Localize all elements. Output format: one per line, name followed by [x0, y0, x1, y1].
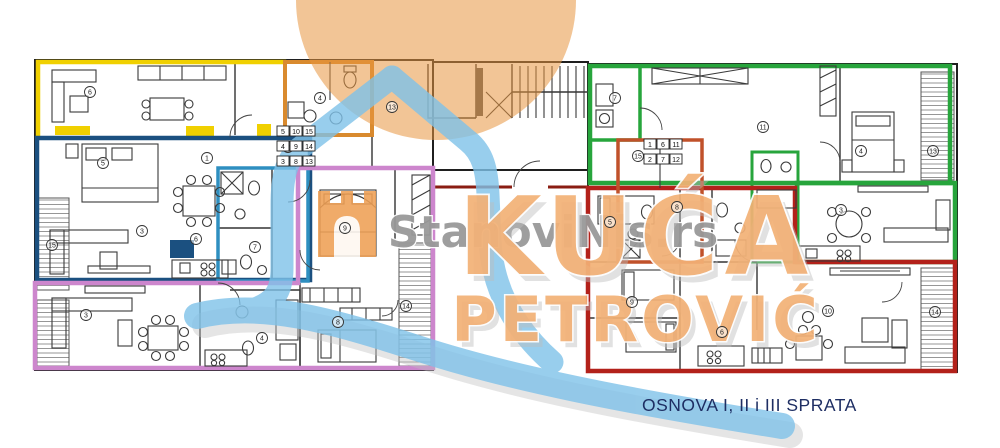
- room-number-text: 5: [101, 161, 105, 168]
- room-number-text: 8: [336, 320, 340, 327]
- floorplan-svg: StanoviNis.rs KUĆA KUĆA PETROVIĆ PETROVI…: [0, 0, 1000, 448]
- caption-text: OSNOVA I, II i III SPRATA: [642, 395, 857, 415]
- unit-number-text: 6: [661, 142, 665, 149]
- furniture-yellow-apartment: [52, 66, 226, 122]
- unit-number-text: 15: [305, 129, 313, 136]
- unit-number-text: 11: [672, 142, 679, 149]
- unit-number-text: 8: [294, 159, 298, 166]
- room-number-text: 14: [931, 310, 939, 317]
- unit-number-text: 5: [281, 129, 285, 136]
- unit-number-text: 4: [281, 144, 285, 151]
- unit-number-text: 14: [305, 144, 313, 151]
- room-number-text: 8: [675, 205, 679, 212]
- room-number-text: 6: [194, 237, 198, 244]
- furniture-navy-apartment: [50, 144, 228, 278]
- furniture-cyan-unit: [221, 172, 267, 275]
- room-number-text: 4: [859, 149, 863, 156]
- room-number-text: 10: [824, 309, 832, 316]
- apartment-yellow-outline: [38, 62, 284, 137]
- brand-line1: KUĆA: [458, 173, 814, 300]
- floorplan-image: StanoviNis.rs KUĆA KUĆA PETROVIĆ PETROVI…: [0, 0, 1000, 448]
- room-number-text: 13: [388, 105, 396, 112]
- room-number-text: 9: [630, 300, 634, 307]
- unit-number-text: 12: [672, 157, 680, 164]
- room-number-text: 1: [205, 156, 209, 163]
- room-number-text: 3: [839, 208, 843, 215]
- room-number-text: 14: [402, 304, 410, 311]
- room-number-text: 9: [343, 226, 347, 233]
- room-number-text: 4: [260, 336, 264, 343]
- unit-number-text: 7: [661, 157, 665, 164]
- yellow-wall-accents: [55, 124, 271, 136]
- room-number-text: 5: [608, 220, 612, 227]
- room-number-text: 3: [84, 313, 88, 320]
- room-number-text: 6: [88, 90, 92, 97]
- room-number-text: 13: [929, 149, 937, 156]
- brand-line2: PETROVIĆ: [451, 283, 820, 356]
- unit-number-text: 13: [305, 159, 313, 166]
- unit-number-text: 3: [281, 159, 285, 166]
- room-number-text: 6: [720, 330, 724, 337]
- unit-number-text: 10: [292, 129, 300, 136]
- unit-number-text: 9: [294, 144, 298, 151]
- room-number-text: 7: [253, 245, 257, 252]
- room-number-text: 4: [318, 96, 322, 103]
- room-number-text: 3: [140, 229, 144, 236]
- unit-number-text: 1: [648, 142, 652, 149]
- room-number-text: 7: [613, 96, 617, 103]
- balcony-left-lower: [37, 300, 69, 366]
- room-number-text: 15: [634, 154, 642, 161]
- unit-number-text: 2: [648, 157, 652, 164]
- balcony-right-lower: [921, 268, 954, 370]
- room-number-text: 11: [759, 125, 766, 132]
- room-number-text: 15: [48, 243, 56, 250]
